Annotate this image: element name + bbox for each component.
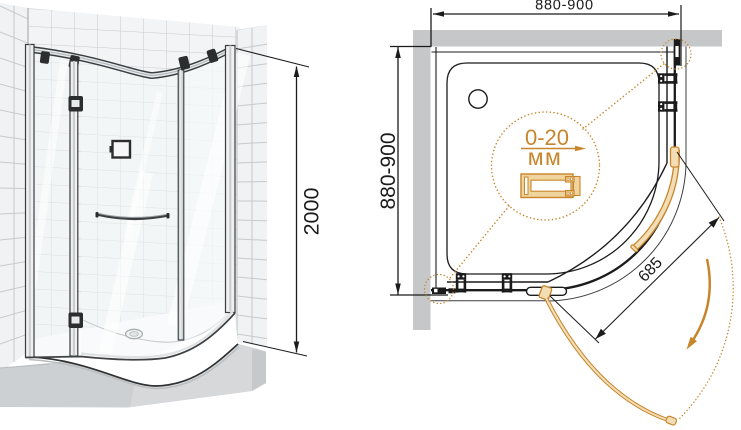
svg-text:2000: 2000 [300, 188, 324, 236]
svg-text:880-900: 880-900 [377, 132, 400, 209]
svg-text:мм: мм [528, 144, 563, 170]
svg-text:685: 685 [635, 254, 666, 285]
svg-text:880-900: 880-900 [535, 0, 594, 14]
